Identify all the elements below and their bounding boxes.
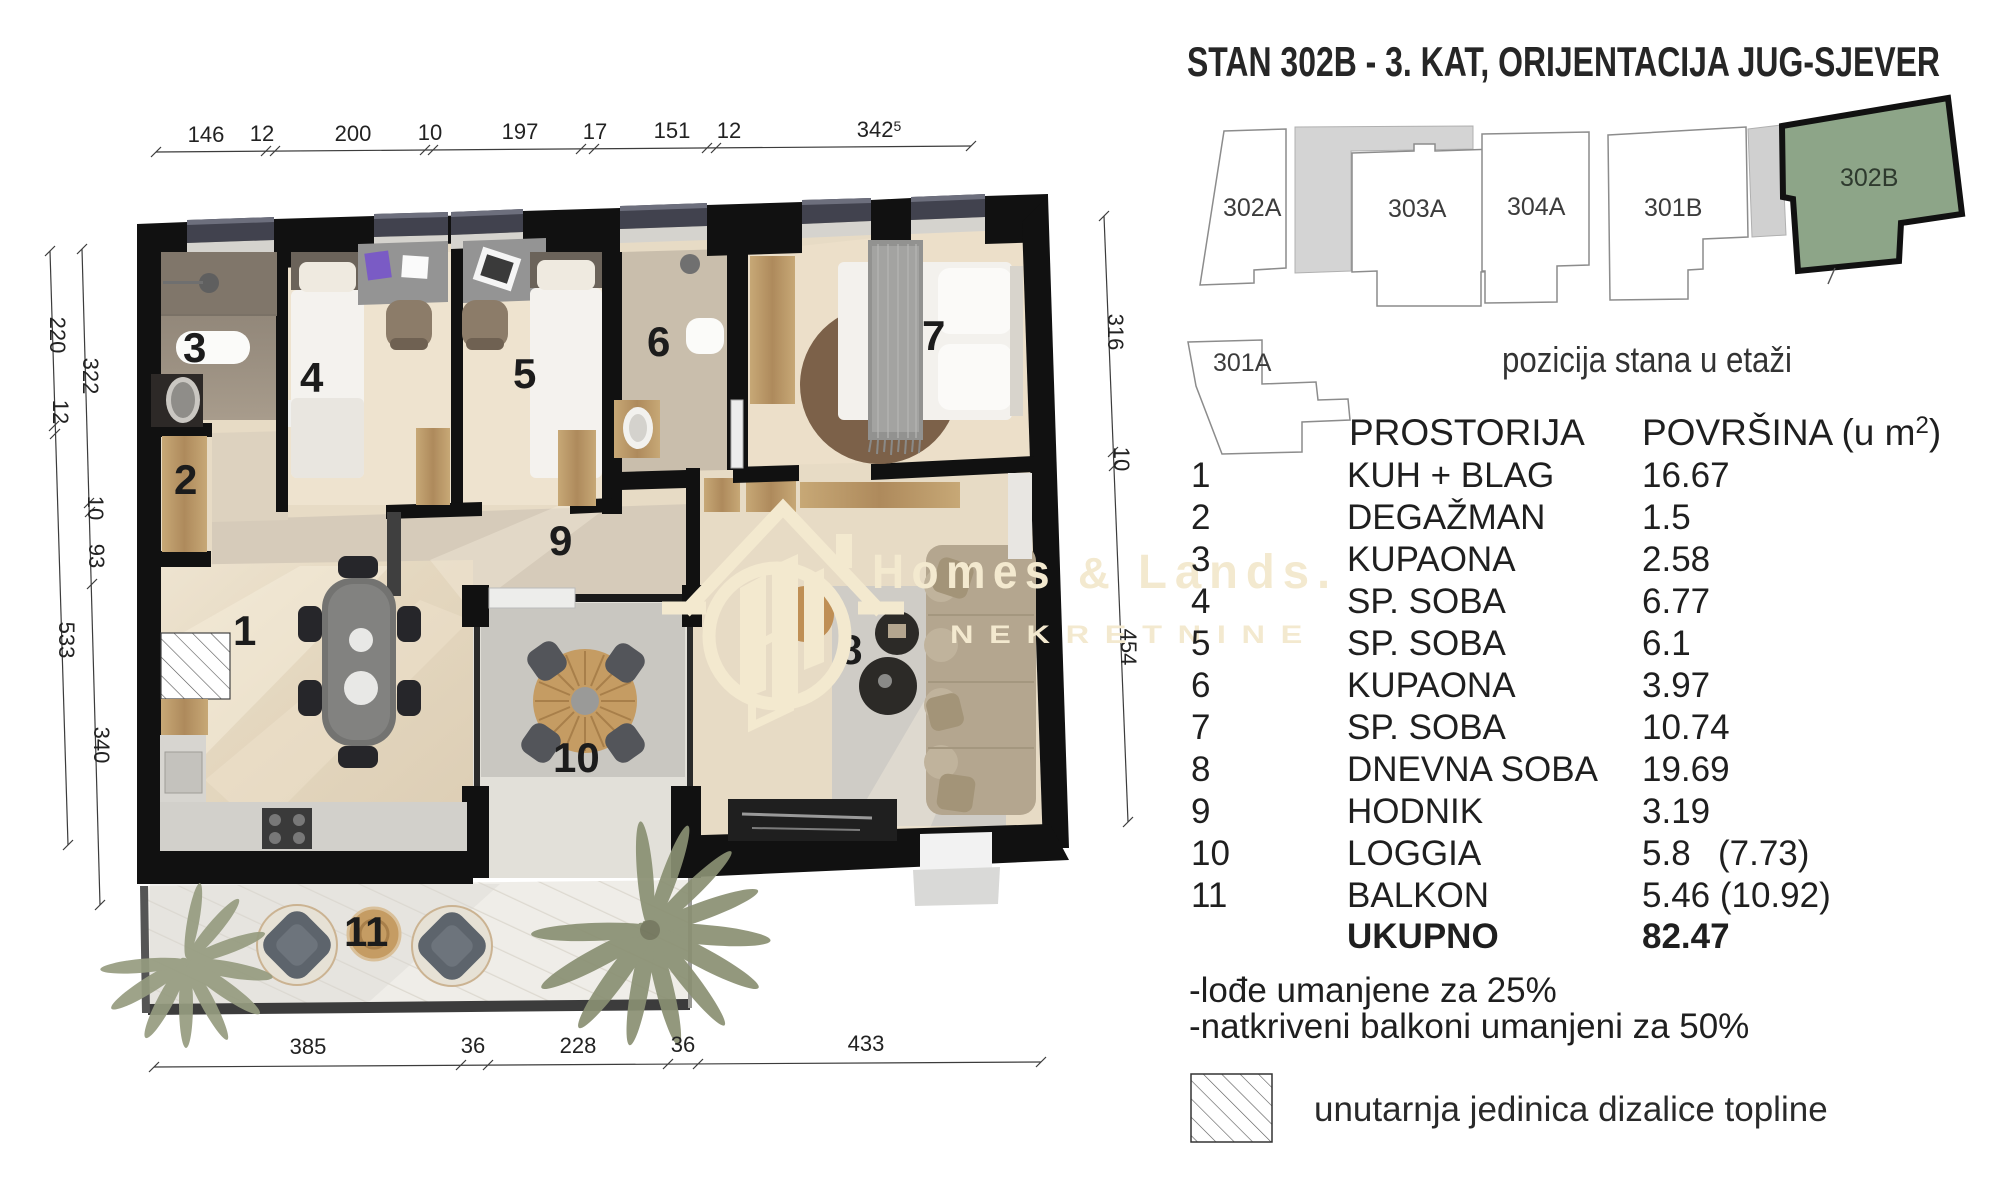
svg-text:(7.73): (7.73) — [1718, 834, 1809, 873]
svg-text:HODNIK: HODNIK — [1347, 792, 1483, 831]
svg-text:10.74: 10.74 — [1642, 708, 1730, 747]
svg-text:1.5: 1.5 — [1642, 498, 1691, 537]
svg-text:-natkriveni balkoni umanjeni z: -natkriveni balkoni umanjeni za 50% — [1189, 1007, 1749, 1046]
svg-text:pozicija stana u etaži: pozicija stana u etaži — [1502, 339, 1792, 380]
svg-text:17: 17 — [583, 119, 607, 144]
svg-text:200: 200 — [335, 121, 372, 146]
svg-text:PROSTORIJA: PROSTORIJA — [1349, 412, 1585, 453]
svg-text:5: 5 — [513, 350, 536, 397]
svg-text:12: 12 — [717, 118, 741, 143]
svg-text:340: 340 — [89, 727, 114, 764]
svg-text:10: 10 — [553, 734, 600, 781]
svg-text:3.97: 3.97 — [1642, 666, 1710, 705]
svg-text:82.47: 82.47 — [1642, 917, 1730, 956]
svg-text:146: 146 — [188, 122, 225, 147]
svg-text:6: 6 — [647, 318, 670, 365]
svg-text:Lands.: Lands. — [1138, 546, 1338, 599]
svg-text:9: 9 — [1191, 792, 1210, 831]
svg-text:3: 3 — [1191, 540, 1210, 579]
svg-text:LOGGIA: LOGGIA — [1347, 834, 1482, 873]
svg-text:302A: 302A — [1223, 194, 1282, 222]
svg-text:316: 316 — [1103, 314, 1128, 351]
svg-text:433: 433 — [848, 1031, 885, 1056]
svg-text:2: 2 — [1191, 498, 1210, 537]
svg-text:&: & — [1078, 549, 1110, 598]
svg-text:19.69: 19.69 — [1642, 750, 1730, 789]
svg-text:16.67: 16.67 — [1642, 456, 1730, 495]
svg-text:8: 8 — [1191, 750, 1210, 789]
svg-text:4: 4 — [1191, 582, 1210, 621]
svg-text:UKUPNO: UKUPNO — [1347, 917, 1499, 956]
svg-text:304A: 304A — [1507, 193, 1566, 221]
svg-text:228: 228 — [560, 1033, 597, 1058]
svg-text:10: 10 — [1109, 447, 1134, 471]
svg-text:7: 7 — [1191, 708, 1210, 747]
svg-text:12: 12 — [48, 400, 73, 424]
svg-text:5.8: 5.8 — [1642, 834, 1691, 873]
svg-text:6: 6 — [1191, 666, 1210, 705]
svg-text:KUPAONA: KUPAONA — [1347, 540, 1516, 579]
svg-text:SP. SOBA: SP. SOBA — [1347, 582, 1507, 621]
svg-text:2: 2 — [174, 456, 197, 503]
svg-text:301A: 301A — [1213, 349, 1272, 377]
svg-text:10: 10 — [1191, 834, 1230, 873]
svg-text:301B: 301B — [1644, 194, 1702, 222]
svg-text:BALKON: BALKON — [1347, 876, 1489, 915]
svg-text:4: 4 — [300, 354, 324, 401]
svg-text:9: 9 — [549, 517, 572, 564]
svg-text:10: 10 — [418, 120, 442, 145]
svg-text:36: 36 — [671, 1032, 695, 1057]
svg-text:POVRŠINA (u m2): POVRŠINA (u m2) — [1642, 412, 1941, 453]
svg-text:385: 385 — [290, 1034, 327, 1059]
svg-text:151: 151 — [654, 118, 691, 143]
svg-text:-lođe umanjene za 25%: -lođe umanjene za 25% — [1189, 971, 1557, 1010]
svg-text:KUPAONA: KUPAONA — [1347, 666, 1516, 705]
svg-text:STAN 302B - 3. KAT, ORIJENTACI: STAN 302B - 3. KAT, ORIJENTACIJA JUG-SJE… — [1187, 38, 1940, 85]
svg-text:11: 11 — [1191, 876, 1227, 915]
svg-text:1: 1 — [233, 607, 256, 654]
svg-text:93: 93 — [84, 544, 109, 568]
svg-text:533: 533 — [54, 622, 79, 659]
svg-text:5: 5 — [1191, 624, 1210, 663]
svg-text:36: 36 — [461, 1033, 485, 1058]
svg-text:6.1: 6.1 — [1642, 624, 1691, 663]
svg-text:220: 220 — [45, 317, 70, 354]
svg-text:11: 11 — [344, 908, 388, 955]
svg-text:1: 1 — [1191, 456, 1210, 495]
svg-text:DNEVNA SOBA: DNEVNA SOBA — [1347, 750, 1599, 789]
svg-text:302B: 302B — [1840, 164, 1898, 192]
svg-text:5.46 (10.92): 5.46 (10.92) — [1642, 876, 1831, 915]
svg-text:Homes: Homes — [872, 546, 1057, 599]
svg-text:SP. SOBA: SP. SOBA — [1347, 624, 1507, 663]
svg-text:322: 322 — [78, 358, 103, 395]
svg-text:KUH + BLAG: KUH + BLAG — [1347, 456, 1554, 495]
svg-text:2.58: 2.58 — [1642, 540, 1710, 579]
svg-text:197: 197 — [502, 119, 539, 144]
svg-text:10: 10 — [83, 496, 108, 520]
svg-text:6.77: 6.77 — [1642, 582, 1710, 621]
svg-text:3.19: 3.19 — [1642, 792, 1710, 831]
svg-text:DEGAŽMAN: DEGAŽMAN — [1347, 498, 1545, 537]
svg-text:7: 7 — [922, 312, 945, 359]
svg-text:SP. SOBA: SP. SOBA — [1347, 708, 1507, 747]
svg-text:3: 3 — [183, 324, 206, 371]
svg-text:12: 12 — [250, 121, 274, 146]
svg-text:303A: 303A — [1388, 195, 1447, 223]
svg-text:unutarnja jedinica dizalice to: unutarnja jedinica dizalice topline — [1314, 1090, 1828, 1129]
svg-text:NEKRETNINE: NEKRETNINE — [950, 621, 1318, 649]
